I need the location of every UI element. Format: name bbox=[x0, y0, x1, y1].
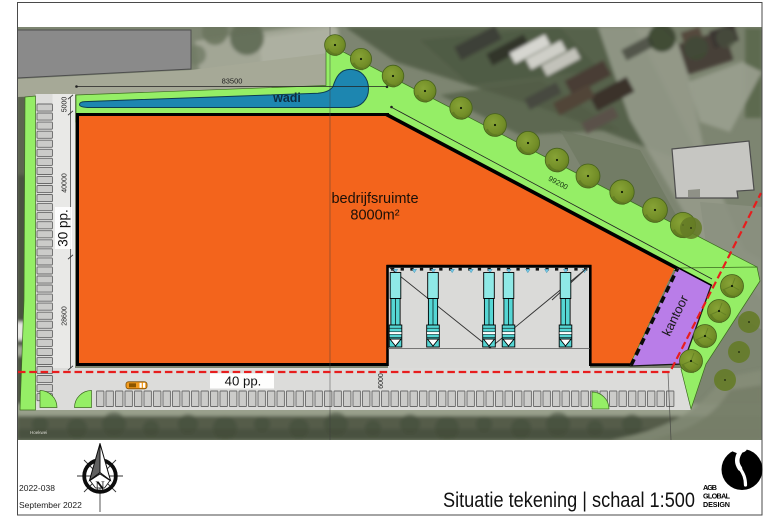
svg-text:28600: 28600 bbox=[61, 306, 68, 326]
svg-text:8000m²: 8000m² bbox=[350, 208, 399, 224]
svg-text:bedrijfsruimte: bedrijfsruimte bbox=[331, 191, 418, 207]
svg-text:6000: 6000 bbox=[378, 373, 385, 389]
svg-text:2022-038: 2022-038 bbox=[19, 483, 55, 493]
svg-text:DESIGN: DESIGN bbox=[703, 500, 730, 509]
svg-text:wadi: wadi bbox=[272, 91, 301, 105]
svg-text:September 2022: September 2022 bbox=[19, 500, 82, 510]
svg-text:5000: 5000 bbox=[61, 97, 68, 113]
svg-text:30 pp.: 30 pp. bbox=[56, 209, 71, 247]
svg-text:Situatie tekening | schaal 1:5: Situatie tekening | schaal 1:500 bbox=[443, 489, 695, 512]
svg-text:N: N bbox=[95, 479, 104, 493]
svg-text:40 pp.: 40 pp. bbox=[225, 374, 262, 389]
svg-text:83500: 83500 bbox=[222, 77, 243, 86]
svg-text:40000: 40000 bbox=[61, 173, 68, 193]
svg-text:Hoekwei: Hoekwei bbox=[30, 430, 47, 435]
